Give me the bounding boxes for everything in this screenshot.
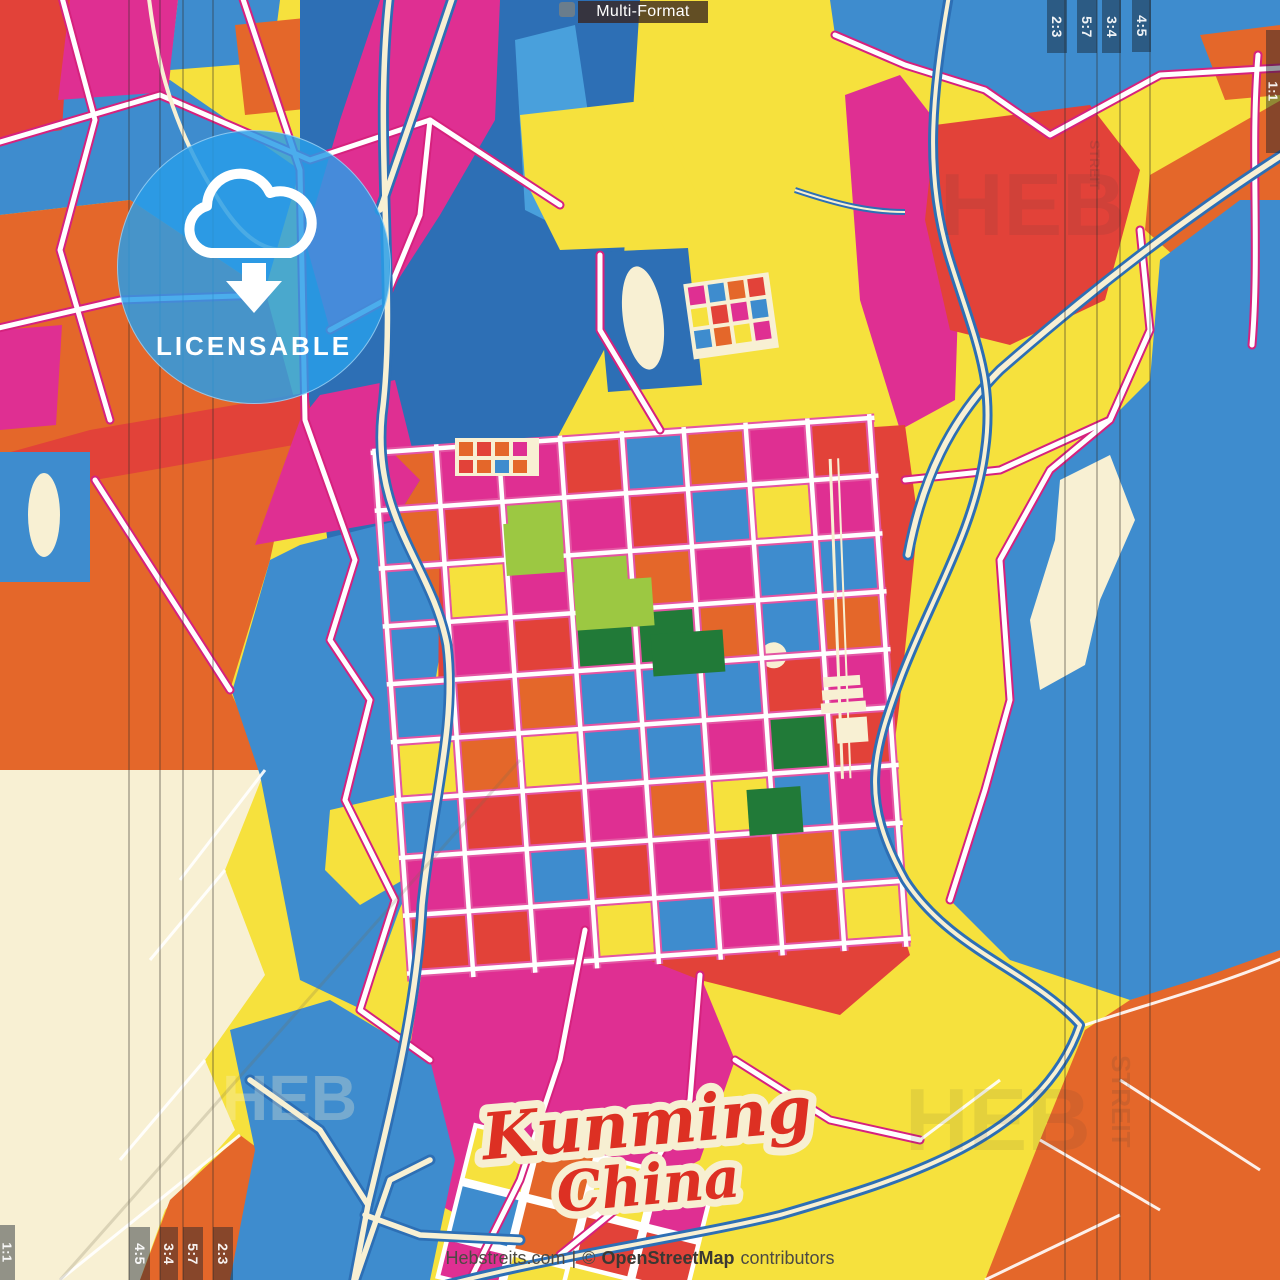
site-link[interactable]: Hebstreits.com (445, 1248, 565, 1269)
osm-link[interactable]: OpenStreetMap (601, 1248, 734, 1269)
watermark-heb-2: HEB (905, 1070, 1091, 1169)
format-label-2-3-top: 2:3 (1047, 0, 1067, 53)
licensable-badge: LICENSABLE (117, 130, 391, 404)
watermark-streit-1: STREIT (1106, 1055, 1136, 1148)
badge-label: LICENSABLE (156, 331, 352, 362)
copyright-symbol: © (582, 1248, 595, 1269)
format-bar-dot (559, 2, 575, 17)
format-bar: Multi-Format (578, 1, 708, 23)
cloud-download-icon (169, 167, 339, 317)
format-label-4-5-top: 4:5 (1132, 0, 1151, 52)
format-label-1-1-top: 1:1 (1266, 30, 1280, 153)
map-poster: HEB HEB HEB STREIT STREIT Kunming China … (0, 0, 1280, 1280)
format-label-3-4-top: 3:4 (1102, 0, 1121, 53)
format-label-5-7-top: 5:7 (1077, 0, 1097, 53)
attribution-footer: Hebstreits.com | © OpenStreetMap contrib… (0, 1248, 1280, 1269)
village-cluster-w (455, 438, 539, 476)
footer-separator: | (572, 1248, 577, 1269)
watermark-streit-2: STREIT (1087, 140, 1103, 190)
village-cluster-ne (683, 272, 779, 359)
contributors-label: contributors (740, 1248, 834, 1269)
